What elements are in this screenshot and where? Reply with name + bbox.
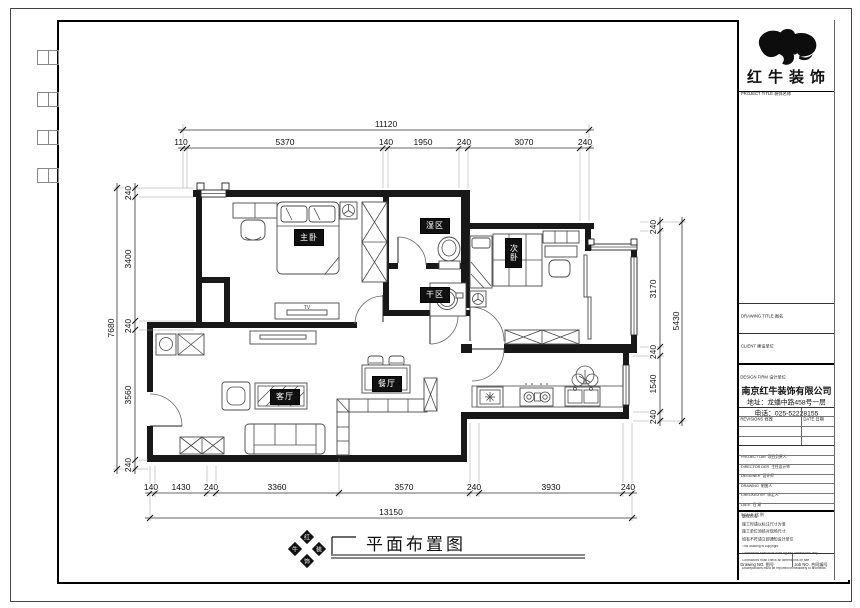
svg-text:3400: 3400 [123, 249, 133, 268]
svg-text:240: 240 [648, 220, 658, 234]
armchair [222, 382, 250, 410]
ac-unit-icon [470, 291, 486, 307]
svg-text:3170: 3170 [648, 279, 658, 298]
revision-row [739, 436, 834, 445]
person-row-designer: DESIGNER 设计师 [739, 464, 834, 474]
floorplan-sheet: TV [0, 0, 860, 608]
svg-text:240: 240 [457, 137, 471, 147]
door-entry [150, 394, 182, 426]
master-tv-cabinet: TV [275, 303, 339, 319]
person-row-checked: CHECKED BY 审定人 [739, 483, 834, 493]
svg-text:7680: 7680 [106, 318, 116, 337]
svg-text:牛: 牛 [292, 546, 298, 554]
svg-text:240: 240 [648, 345, 658, 359]
svg-text:140: 140 [379, 137, 393, 147]
drawing-no-row: Drawing NO. 图号 Job NO. 合同编号 [739, 553, 834, 567]
project-title-row: PROJECT TITLE 装饰名称 [739, 83, 834, 92]
floorplan-canvas: TV [0, 0, 860, 608]
svg-text:5370: 5370 [276, 137, 295, 147]
svg-text:3360: 3360 [268, 482, 287, 492]
door-dry-area [430, 316, 458, 344]
svg-text:240: 240 [123, 186, 133, 200]
person-row-director: DIRECTOR DER 主任设计师 [739, 455, 834, 465]
person-row-date: DATE 日 期 [739, 493, 834, 503]
room-label-living: 客厅 [270, 389, 300, 405]
svg-text:3930: 3930 [542, 482, 561, 492]
svg-text:11120: 11120 [375, 119, 398, 129]
brand-logo-icon [739, 26, 834, 66]
dining-chairs [368, 356, 404, 366]
shoe-cabinet [180, 437, 224, 454]
entry-cabinet [178, 334, 204, 355]
drawing-caption: 平面布置图 [366, 535, 466, 554]
person-row-project-dir: PROJECT DIR 项目负责人 [739, 445, 834, 455]
svg-text:1540: 1540 [648, 374, 658, 393]
svg-text:240: 240 [123, 458, 133, 472]
door-second-bedroom [470, 307, 504, 341]
room-label-dining: 餐厅 [372, 376, 402, 392]
drawing-title-row: DRAWING TITLE 图名 [739, 303, 834, 333]
svg-text:3570: 3570 [395, 482, 414, 492]
person-row-drawing: DRAWING 制图人 [739, 474, 834, 484]
revision-row [739, 416, 834, 426]
ac-unit-icon [340, 202, 357, 219]
door-kitchen [472, 349, 504, 381]
room-label-master: 主卧 [294, 229, 324, 246]
svg-text:5430: 5430 [671, 311, 681, 330]
second-bed [470, 236, 492, 288]
sofa [245, 424, 325, 454]
brand-name: 红牛装饰 [739, 66, 834, 83]
svg-text:TV: TV [304, 305, 311, 311]
svg-text:3560: 3560 [123, 385, 133, 404]
revision-row [739, 426, 834, 436]
fridge-icon [477, 387, 503, 407]
svg-text:13150: 13150 [379, 507, 403, 517]
svg-text:240: 240 [204, 482, 218, 492]
second-desk [545, 246, 577, 277]
svg-text:饰: 饰 [304, 558, 310, 566]
svg-text:240: 240 [621, 482, 635, 492]
toilet-icon [438, 237, 460, 269]
svg-text:240: 240 [123, 319, 133, 333]
svg-text:110: 110 [174, 137, 188, 147]
svg-text:3070: 3070 [515, 137, 534, 147]
caption-bracket [332, 537, 356, 554]
room-label-wet-area: 湿区 [420, 218, 450, 234]
title-block: 红牛装饰 PROJECT TITLE 装饰名称 DRAWING TITLE 图名… [737, 20, 850, 580]
master-wardrobe [362, 202, 387, 282]
company-name: 南京红牛装饰有限公司 [739, 384, 834, 397]
door-wet-area [398, 237, 426, 265]
plant-icon [572, 366, 598, 386]
svg-text:装: 装 [316, 546, 322, 554]
window-end-post [631, 239, 637, 245]
notes-block: 版权所有 施工时请以标注尺寸为准 施工单位须核对现场尺寸 如有不符请立即通知设计… [739, 515, 834, 553]
second-wardrobe [505, 330, 579, 344]
balcony-sliding-door [584, 255, 591, 339]
window-end-post [197, 183, 204, 190]
title-block-inner: 红牛装饰 PROJECT TITLE 装饰名称 DRAWING TITLE 图名… [739, 20, 835, 580]
svg-text:红: 红 [304, 534, 310, 542]
svg-text:240: 240 [578, 137, 592, 147]
caption-block: 红 牛 装 饰 平面布置图 [288, 530, 585, 568]
caption-diamond-logo: 红 牛 装 饰 [288, 530, 326, 568]
svg-text:240: 240 [648, 410, 658, 424]
svg-text:1950: 1950 [414, 137, 433, 147]
washer-icon [156, 334, 176, 355]
svg-text:1430: 1430 [172, 482, 191, 492]
hall-console [250, 331, 316, 344]
room-label-dry-area: 干区 [420, 287, 450, 303]
client-row: CLIENT 建设单位 [739, 333, 834, 363]
design-firm-row: DESIGN FIRM 设计单位 南京红牛装饰有限公司 地址：龙蟠中路458号一… [739, 363, 834, 407]
master-desk [233, 203, 277, 240]
room-label-second: 次卧 [505, 238, 522, 268]
svg-text:140: 140 [144, 482, 158, 492]
window-end-post [222, 183, 229, 190]
door-master [355, 295, 383, 324]
company-address: 地址：龙蟠中路458号一层 [744, 398, 830, 408]
second-shelf [543, 231, 579, 243]
dim-right: 240 3170 240 1540 240 5430 [633, 217, 686, 426]
svg-text:240: 240 [467, 482, 481, 492]
window-end-post [588, 239, 594, 245]
person-row-scale: SCALE 比 例 [739, 503, 834, 513]
revisions-header: REVISIONS 修改 DATE 日期 [739, 407, 834, 416]
sink-icon [565, 387, 600, 406]
stove-icon [520, 383, 553, 406]
